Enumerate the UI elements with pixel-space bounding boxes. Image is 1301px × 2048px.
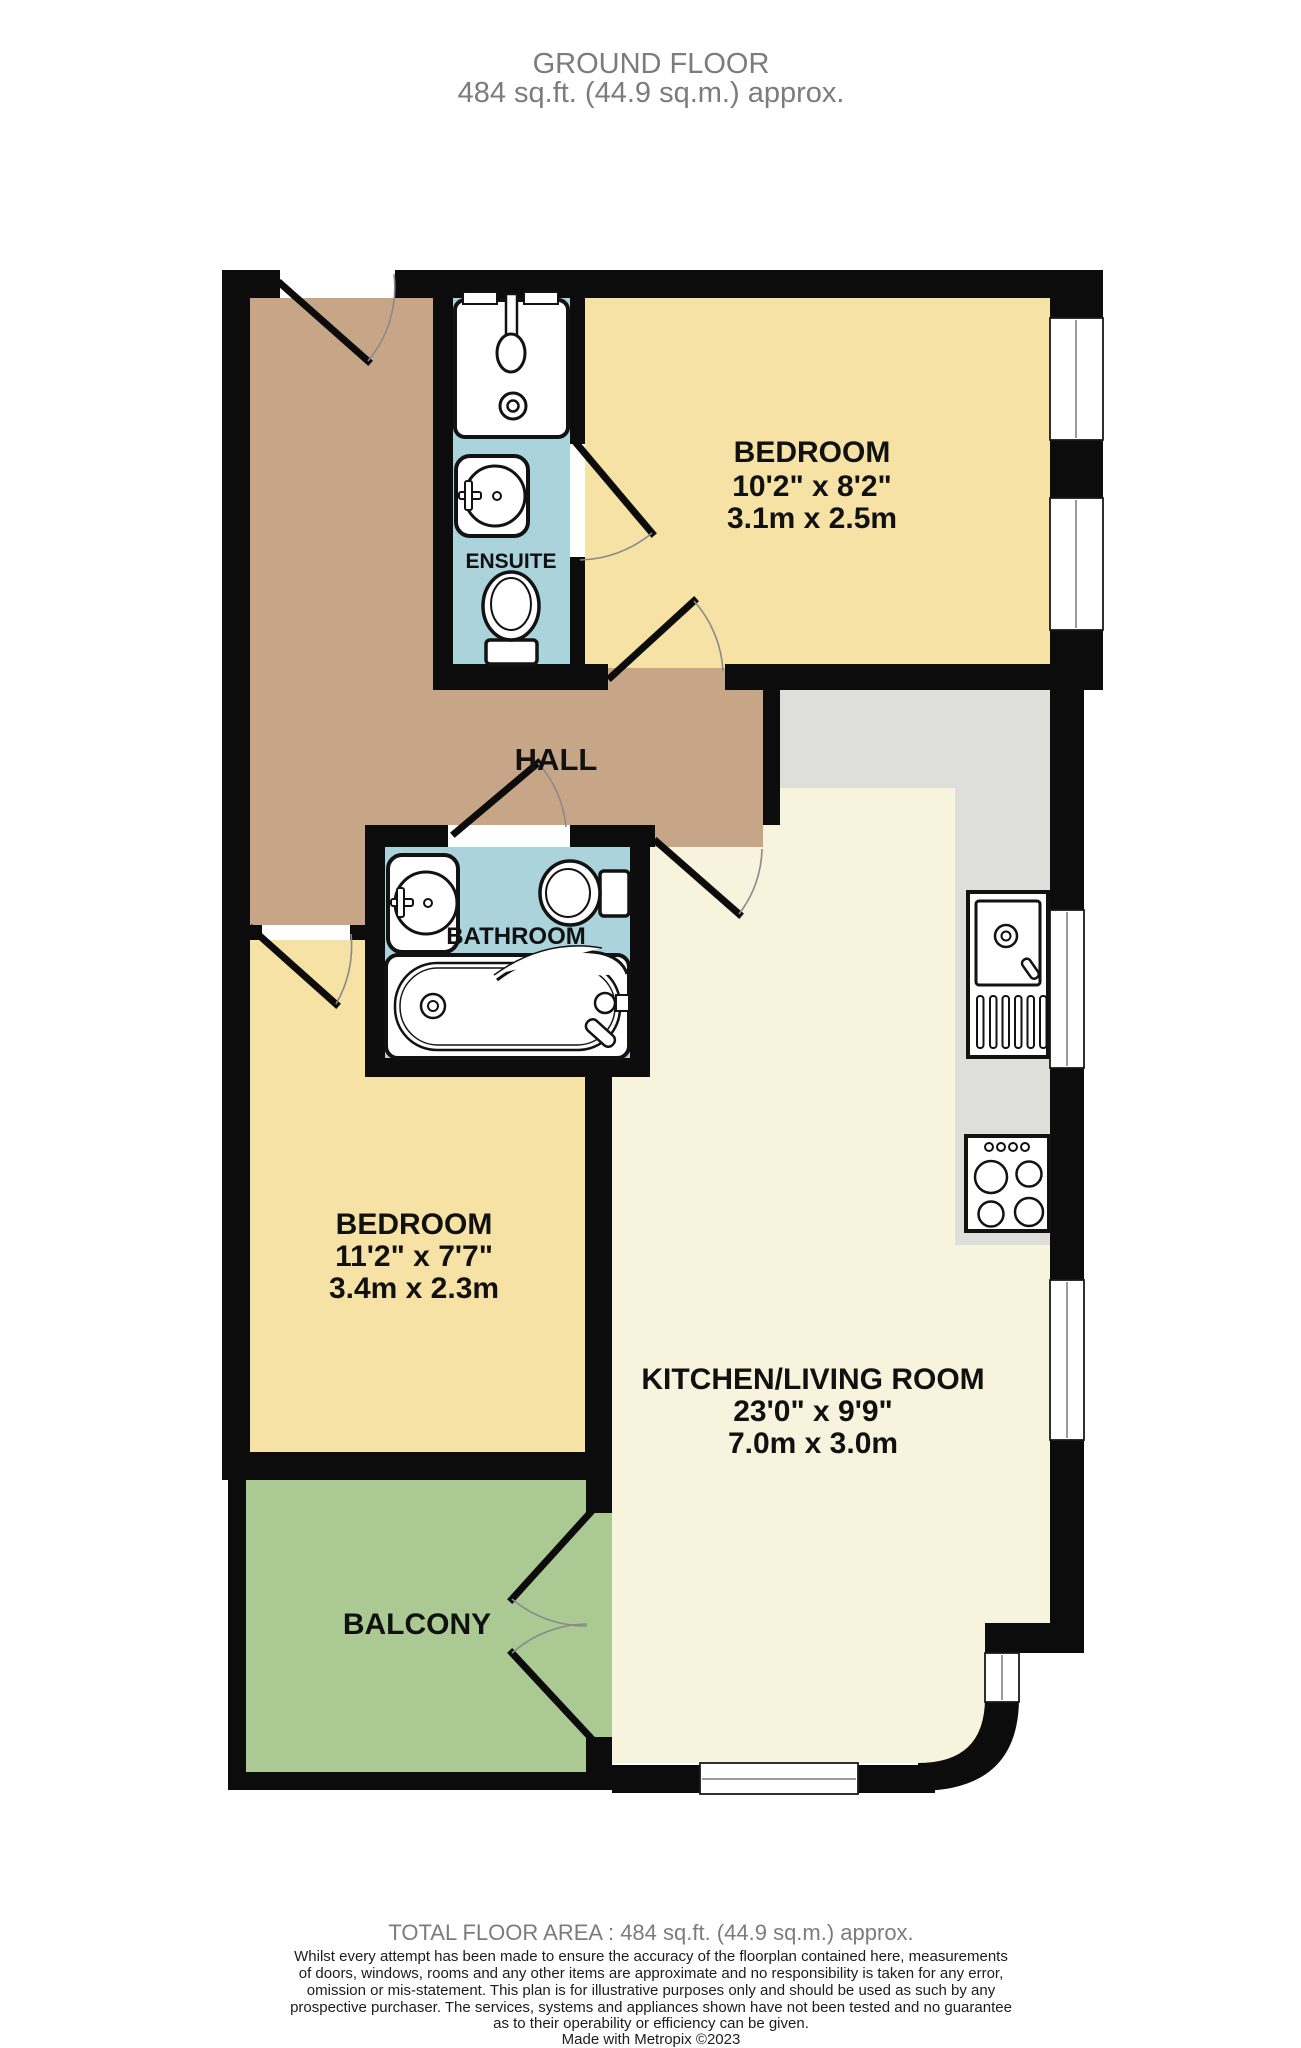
kitchen-label: KITCHEN/LIVING ROOM <box>641 1363 984 1396</box>
disclaimer-line-1: Whilst every attempt has been made to en… <box>294 1948 1008 1965</box>
wall-right-seg1 <box>1050 270 1103 318</box>
kitchen-window-2 <box>1050 1280 1084 1440</box>
kitchen-window-1 <box>1050 910 1084 1068</box>
disclaimer-line-5: as to their operability or efficiency ca… <box>493 2015 809 2032</box>
disclaimer-line-4: prospective purchaser. The services, sys… <box>290 1999 1012 2016</box>
credit-line: Made with Metropix ©2023 <box>562 2031 741 2048</box>
total-floor-area: TOTAL FLOOR AREA : 484 sq.ft. (44.9 sq.m… <box>388 1920 913 1945</box>
wall-midband-right <box>725 664 1084 690</box>
kitchen-size-metric: 7.0m x 3.0m <box>728 1427 898 1460</box>
hall-label: HALL <box>515 742 598 777</box>
wall-midband-left <box>433 664 608 690</box>
ensuite-toilet <box>483 572 539 664</box>
wall-bathroom-bottom <box>365 1058 650 1077</box>
disclaimer-line-2: of doors, windows, rooms and any other i… <box>299 1965 1004 1982</box>
bedroom2-label: BEDROOM <box>336 1208 493 1241</box>
wall-right-seg4 <box>1050 690 1084 910</box>
bathtub <box>386 946 629 1058</box>
plan-subtitle: 484 sq.ft. (44.9 sq.m.) approx. <box>458 77 845 109</box>
bedroom1-window-2 <box>1050 498 1103 630</box>
kitchen-size-imperial: 23'0" x 9'9" <box>733 1395 893 1428</box>
shower <box>455 292 568 437</box>
wall-bathroom-left <box>365 825 385 1077</box>
wall-balcony-left <box>228 1480 246 1790</box>
bedroom1-label: BEDROOM <box>734 436 891 469</box>
wall-ensuite-left <box>433 298 453 688</box>
kitchen-window-lower-right <box>985 1653 1019 1702</box>
floorplan: GROUND FLOOR 484 sq.ft. (44.9 sq.m.) app… <box>0 0 1301 2048</box>
bedroom1-size-imperial: 10'2" x 8'2" <box>732 470 892 503</box>
kitchen-sink <box>968 892 1048 1057</box>
plan-title: GROUND FLOOR <box>533 48 770 80</box>
wall-bedroom2-balcony <box>222 1452 612 1480</box>
wall-right-seg6 <box>1050 1440 1084 1653</box>
bedroom1-size-metric: 3.1m x 2.5m <box>727 502 897 535</box>
cooker-hob <box>966 1136 1049 1231</box>
bedroom2-size-metric: 3.4m x 2.3m <box>329 1272 499 1305</box>
ensuite-sink <box>456 456 528 536</box>
wall-bedroom2-right <box>585 1077 612 1480</box>
disclaimer-line-3: omission or mis-statement. This plan is … <box>307 1982 996 1999</box>
bathroom-toilet <box>540 861 629 925</box>
wall-ensuite-right-top <box>570 298 585 444</box>
wall-bottom-seg1 <box>612 1765 700 1793</box>
wall-step <box>985 1623 1084 1653</box>
wall-top-main <box>395 270 1084 298</box>
ensuite-label: ENSUITE <box>465 550 556 573</box>
balcony-label: BALCONY <box>343 1608 491 1641</box>
wall-hall-kitchen <box>763 690 780 825</box>
wall-balcony-bottom <box>228 1772 612 1790</box>
wall-bottom-seg2 <box>858 1765 935 1793</box>
floorplan-page: { "title": { "line1": "GROUND FLOOR", "l… <box>0 0 1301 2048</box>
bedroom1-window-1 <box>1050 318 1103 440</box>
wall-bathroom-right <box>630 825 650 1058</box>
wall-bedroom2-top-stub-right <box>350 925 385 940</box>
wall-balcony-right-bottom <box>586 1737 612 1772</box>
wall-balcony-right-top <box>586 1480 612 1513</box>
kitchen-window-bottom <box>700 1763 858 1794</box>
bedroom2-size-imperial: 11'2" x 7'7" <box>335 1240 493 1273</box>
wall-left <box>222 270 250 1480</box>
wall-right-seg2 <box>1050 440 1103 498</box>
bathroom-label: BATHROOM <box>446 923 586 950</box>
wall-right-seg5 <box>1050 1068 1084 1280</box>
